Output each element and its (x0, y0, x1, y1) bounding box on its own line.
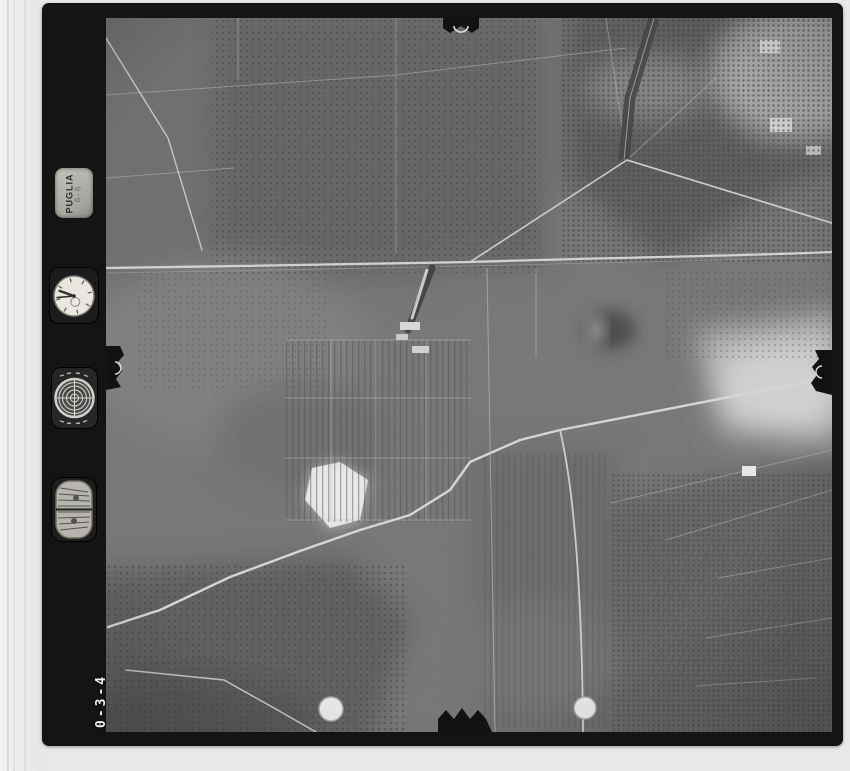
vignette (106, 18, 832, 732)
data-plate: PUGLIA 6-6 (55, 168, 93, 218)
bullseye-icon (52, 368, 97, 428)
aerial-photo-render (106, 18, 832, 732)
frame-number: 0-3-4 (94, 674, 109, 728)
page-edge-stripe (13, 0, 15, 771)
data-plate-face: PUGLIA 6-6 (66, 173, 83, 213)
film-frame: PUGLIA 6-6 (42, 3, 843, 746)
page-edge-stripe (7, 0, 9, 771)
page-edge-stripe (31, 0, 32, 771)
clock-icon (50, 268, 98, 323)
altimeter-gauge (52, 478, 96, 541)
page-edge-stripe (24, 0, 26, 771)
altimeter-icon (52, 478, 96, 541)
scanned-page-edge (0, 0, 42, 771)
aerial-photo (106, 18, 832, 732)
bullseye-level (52, 368, 97, 428)
clock-instrument (50, 268, 98, 323)
plate-code: 6-6 (75, 173, 83, 213)
